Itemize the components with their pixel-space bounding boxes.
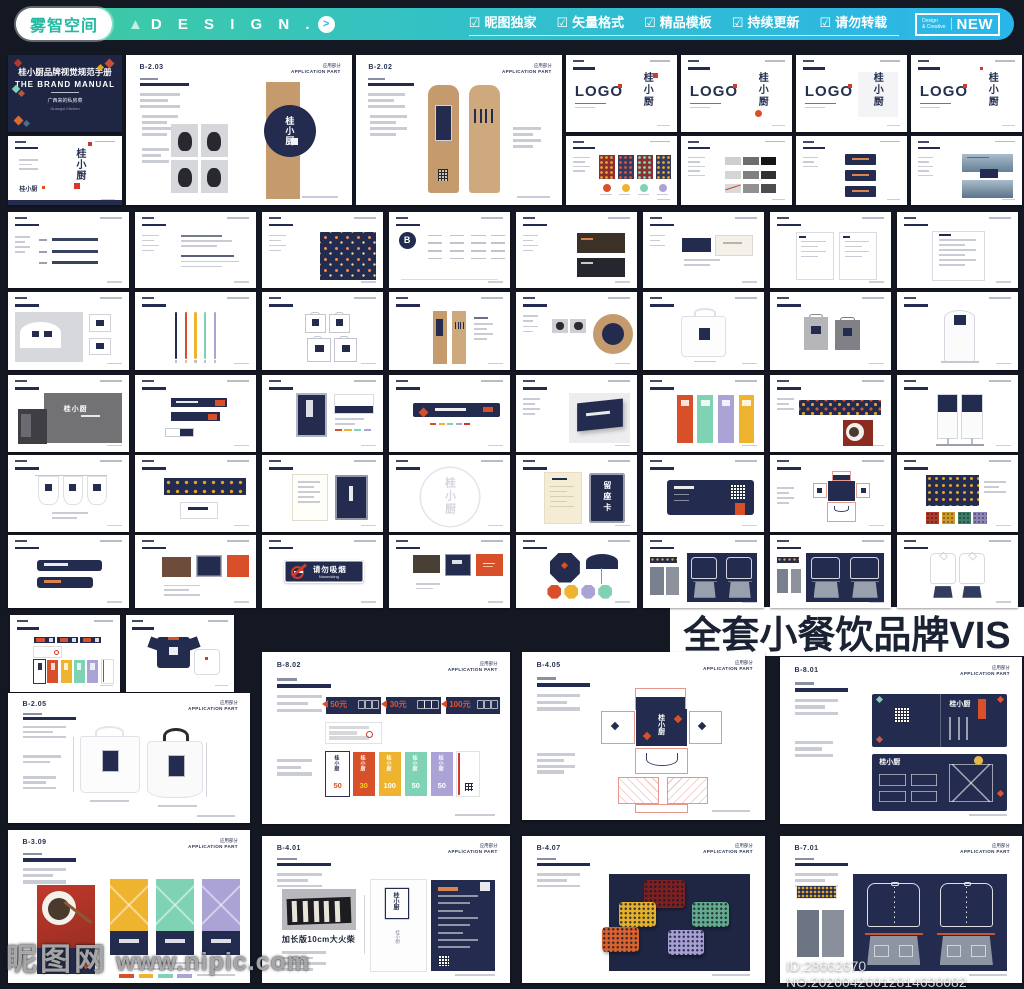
text-line xyxy=(523,413,535,415)
shape xyxy=(577,258,625,278)
shape xyxy=(619,194,630,195)
shape xyxy=(491,250,506,252)
logo-page[interactable]: LOGO桂小厨 xyxy=(796,55,907,132)
shape xyxy=(843,328,853,336)
page-code-mark xyxy=(142,380,154,382)
shape xyxy=(428,258,443,260)
text-line xyxy=(142,240,154,242)
shape xyxy=(381,700,387,708)
shape xyxy=(481,460,503,462)
shape xyxy=(72,638,76,641)
shape xyxy=(364,895,365,954)
thumbnail-doorBanners[interactable] xyxy=(643,375,764,452)
shape xyxy=(460,322,461,330)
shape xyxy=(904,387,928,389)
shape xyxy=(488,525,503,526)
shape xyxy=(537,677,556,680)
shape xyxy=(899,945,914,957)
shape xyxy=(368,83,413,86)
thumbnail-redNavy[interactable] xyxy=(135,535,256,608)
page-B-2.05[interactable]: B-2.05应用部分APPLICATION PART xyxy=(8,693,250,823)
shape xyxy=(234,281,249,282)
thumbnail-bullets[interactable] xyxy=(8,212,129,288)
gray-chip xyxy=(761,157,777,165)
shape xyxy=(269,224,293,226)
text-line xyxy=(537,753,576,756)
thumbnail-contents[interactable]: B xyxy=(389,212,510,288)
thumbnail-vouchersMini[interactable] xyxy=(10,615,120,692)
page-code-mark xyxy=(650,540,662,542)
shape xyxy=(458,753,460,794)
shape xyxy=(488,363,503,364)
seal xyxy=(755,110,762,117)
shape xyxy=(107,601,122,602)
shape xyxy=(681,400,689,406)
cup-photo xyxy=(207,168,221,188)
gray-chip xyxy=(725,157,741,165)
shape xyxy=(862,460,884,462)
text-line xyxy=(142,245,159,247)
thumbnail-photoPages[interactable] xyxy=(911,136,1022,205)
shape xyxy=(575,103,606,105)
shape xyxy=(852,190,870,192)
shape xyxy=(615,525,630,526)
watermark-url: www.nipic.com xyxy=(116,948,310,977)
text-line xyxy=(23,755,62,758)
shape xyxy=(455,322,456,330)
logo-page[interactable]: LOGO桂小厨 xyxy=(566,55,677,132)
thumbnail-patterns4[interactable] xyxy=(566,136,677,205)
text-line xyxy=(23,868,67,871)
shape xyxy=(622,184,630,192)
shape xyxy=(523,304,547,306)
shape xyxy=(989,540,1011,542)
text-line xyxy=(23,731,53,734)
thumbnail-sheets[interactable] xyxy=(770,212,891,288)
text-line xyxy=(474,323,493,325)
thumbnail-rollups[interactable] xyxy=(897,375,1018,452)
thumbnail-wayfinding[interactable] xyxy=(135,375,256,452)
shape: 桂小厨 xyxy=(333,755,340,772)
shape xyxy=(480,882,490,891)
text-line xyxy=(537,707,581,710)
shape xyxy=(777,467,801,469)
shape xyxy=(646,753,678,766)
shape xyxy=(81,415,100,417)
text-line xyxy=(918,157,934,158)
text-line xyxy=(523,398,540,400)
shape xyxy=(23,853,42,855)
text-line xyxy=(918,161,929,162)
shape xyxy=(142,547,166,549)
text-line xyxy=(269,235,286,237)
shape xyxy=(185,360,187,363)
shape xyxy=(833,475,850,480)
shape xyxy=(650,547,674,549)
text-line xyxy=(23,736,67,739)
dept-label: 应用部分APPLICATION PART xyxy=(502,63,552,74)
thumbnail-patternBand[interactable] xyxy=(770,375,891,452)
page-B-8.02[interactable]: B-8.02应用部分APPLICATION PART50元30元100元桂小厨5… xyxy=(262,652,510,824)
text-line xyxy=(298,491,320,493)
text-line xyxy=(19,164,32,165)
page-B-2.02[interactable]: B-2.02应用部分APPLICATION PART xyxy=(356,55,562,205)
thumbnail-umbrella[interactable] xyxy=(516,535,637,608)
text-line xyxy=(803,161,814,162)
shape xyxy=(581,238,593,240)
watermark-site-name: 昵图网 xyxy=(6,934,108,979)
thumbnail-uniformNavy[interactable] xyxy=(770,535,891,608)
shape xyxy=(640,184,648,192)
text-line xyxy=(550,501,567,503)
shape xyxy=(175,360,177,363)
logo-presentation-page[interactable]: 桂小厨桂小厨 xyxy=(8,136,122,205)
text-line xyxy=(513,139,542,142)
text-line xyxy=(984,481,1006,483)
text-line xyxy=(537,770,564,773)
shape xyxy=(941,361,980,363)
pen xyxy=(175,312,177,359)
text-line xyxy=(650,235,665,237)
text-line xyxy=(537,765,576,768)
shape xyxy=(52,238,98,241)
shape xyxy=(938,395,957,412)
page-code: B-7.01 xyxy=(795,845,819,852)
shape xyxy=(962,395,981,412)
shape xyxy=(602,712,634,742)
thumbnail-longBanner[interactable] xyxy=(389,375,510,452)
thumbnail-letterCard[interactable]: 留座卡 xyxy=(516,455,637,532)
shape xyxy=(723,242,742,244)
shape xyxy=(862,540,884,542)
staff-photo xyxy=(797,910,819,957)
thumbnail-bannerPattern[interactable] xyxy=(135,455,256,532)
page-B-4.07[interactable]: B-4.07应用部分APPLICATION PART xyxy=(522,836,765,983)
thumbnail-pens[interactable] xyxy=(135,292,256,370)
id-watermark: ID:28662670 NO:20200426012814638082 xyxy=(786,958,1024,989)
text-line xyxy=(801,251,825,253)
shape xyxy=(21,414,31,437)
shape xyxy=(657,199,670,200)
page-code-mark xyxy=(269,297,281,299)
shape xyxy=(354,460,376,462)
page-code-mark xyxy=(523,380,535,382)
thumbnail-cardNavy[interactable] xyxy=(643,212,764,288)
shape xyxy=(168,755,185,777)
cushion xyxy=(668,930,704,955)
shape xyxy=(96,320,103,325)
shape xyxy=(428,250,443,252)
thumbnail-kraftSleeves[interactable] xyxy=(389,292,510,370)
shape: APPLICATION PART xyxy=(448,667,498,672)
text-line xyxy=(795,747,822,750)
text-line xyxy=(23,787,57,790)
shape xyxy=(795,858,814,860)
text-line xyxy=(777,497,794,499)
shape xyxy=(666,567,679,595)
text-line xyxy=(164,585,200,586)
shape xyxy=(485,109,487,123)
dept-label: 应用部分APPLICATION PART xyxy=(188,700,238,711)
page-thumbnails-montage: 桂小厨品牌视觉规范手册THE BRAND MANUAL广西来的私房菜Guangx… xyxy=(0,0,1024,989)
page-code-mark xyxy=(132,620,143,622)
shape xyxy=(799,236,806,238)
shape xyxy=(102,750,119,772)
thumbnail-navyPattern[interactable] xyxy=(262,212,383,288)
page-code-mark xyxy=(17,620,28,622)
text-line xyxy=(23,776,57,779)
shape xyxy=(44,580,61,583)
apron xyxy=(729,582,751,598)
diamond-ornament xyxy=(23,120,30,127)
page-code: B-2.03 xyxy=(140,64,164,71)
shape xyxy=(60,638,69,641)
shape xyxy=(227,555,249,577)
shape xyxy=(69,484,76,491)
watermark-logo-circle: 桂小厨 xyxy=(421,468,479,526)
ticket-value: 50 xyxy=(431,781,453,790)
thumbnail-menuBook[interactable] xyxy=(262,455,383,532)
thumbnail-flags[interactable] xyxy=(8,455,129,532)
shape xyxy=(32,331,39,337)
shape xyxy=(15,304,39,306)
dept-label: 应用部分APPLICATION PART xyxy=(960,843,1010,854)
thumbnail-signPhoto[interactable] xyxy=(516,375,637,452)
text-line xyxy=(368,93,405,96)
shape xyxy=(735,460,757,462)
text-line xyxy=(684,264,709,266)
gray-chip xyxy=(761,184,777,192)
dept-label: 应用部分APPLICATION PART xyxy=(291,63,341,74)
shape xyxy=(716,236,752,254)
shape xyxy=(481,380,503,382)
text-line xyxy=(939,244,964,246)
shape xyxy=(38,663,42,671)
pattern-swatch xyxy=(958,512,971,524)
shape xyxy=(966,887,967,922)
text-line xyxy=(513,127,542,130)
shape xyxy=(862,297,884,299)
shape xyxy=(674,500,689,502)
text-line xyxy=(523,240,533,242)
shape xyxy=(366,701,371,708)
text-line xyxy=(939,239,975,241)
shape xyxy=(600,194,611,195)
thumbnail-cupSleeve[interactable] xyxy=(8,292,129,370)
shape: 桂小厨 xyxy=(438,755,445,772)
thumbnail-tote[interactable] xyxy=(643,292,764,370)
qr-code xyxy=(465,783,473,791)
shape xyxy=(488,601,503,602)
page-B-4.05[interactable]: B-4.05应用部分APPLICATION PART桂小厨 xyxy=(522,652,765,820)
text-line xyxy=(329,731,357,734)
shape xyxy=(949,764,993,802)
shape xyxy=(476,554,503,576)
shape xyxy=(100,685,113,686)
shape xyxy=(791,569,802,594)
shape xyxy=(483,563,495,564)
thumbnail-darkMenus[interactable] xyxy=(516,212,637,288)
logo-page[interactable]: LOGO桂小厨 xyxy=(911,55,1022,132)
shape: 桂小厨 xyxy=(359,755,366,772)
shape xyxy=(694,308,716,317)
reserve-card-label: 留座卡 xyxy=(602,481,613,514)
text-line xyxy=(368,105,405,108)
menu-logo: 桂小厨 xyxy=(949,699,970,709)
shape xyxy=(401,279,498,280)
page-code-mark xyxy=(15,141,26,143)
thumbnail-swatchPattern[interactable] xyxy=(897,455,1018,532)
shape xyxy=(94,620,114,622)
page-code: B-8.02 xyxy=(277,662,301,669)
pattern-swatch xyxy=(942,512,955,524)
shape xyxy=(214,360,216,363)
text-line xyxy=(15,251,25,253)
thumbnail-grayBags[interactable] xyxy=(770,292,891,370)
shape xyxy=(852,158,870,160)
shape xyxy=(636,805,687,812)
text-line xyxy=(277,772,312,775)
seal xyxy=(733,84,737,88)
ticket-value: 100 xyxy=(379,781,401,790)
text-line xyxy=(329,726,369,729)
page-code-mark xyxy=(650,460,662,462)
poster-template xyxy=(110,879,149,931)
shape xyxy=(428,235,443,237)
shape xyxy=(450,250,465,252)
thumbnail-storefront[interactable]: 桂小厨 xyxy=(8,375,129,452)
text-line xyxy=(370,133,396,136)
shape xyxy=(777,547,801,549)
page-code-mark xyxy=(803,141,814,143)
thumbnail-navyCards3[interactable] xyxy=(796,136,907,205)
jacket-outline xyxy=(811,557,840,579)
shape xyxy=(140,83,190,86)
shape xyxy=(15,224,39,226)
text-line xyxy=(474,338,488,340)
shape xyxy=(215,400,225,406)
shape xyxy=(396,304,420,306)
shape xyxy=(361,281,376,282)
thumbnail-tshirts[interactable] xyxy=(126,615,234,692)
shape xyxy=(54,650,59,655)
thumbnail-cupsKraft[interactable] xyxy=(516,292,637,370)
shape xyxy=(158,805,197,807)
text-line xyxy=(52,512,88,514)
text-line xyxy=(140,105,181,108)
pen xyxy=(214,312,216,359)
shape xyxy=(851,581,879,582)
page-B-8.01[interactable]: B-8.01应用部分APPLICATION PART桂小厨桂小厨 xyxy=(780,657,1022,824)
text-line xyxy=(939,264,964,266)
shape xyxy=(865,933,923,935)
shape xyxy=(995,141,1015,143)
shape xyxy=(42,186,45,189)
shape: APPLICATION PART xyxy=(960,671,1010,676)
shape xyxy=(690,712,722,742)
text-line xyxy=(181,240,232,242)
thumbnail-standee[interactable] xyxy=(897,292,1018,370)
shape xyxy=(204,360,206,363)
shape xyxy=(438,902,470,904)
shape xyxy=(176,401,198,403)
thumbnail-folder[interactable] xyxy=(389,535,510,608)
shape xyxy=(573,67,595,69)
thumbnail-nosmoking[interactable]: 请勿吸烟Nosmoking xyxy=(262,535,383,608)
gray-chip xyxy=(761,171,777,179)
page-code-mark xyxy=(396,540,408,542)
cover-page[interactable]: 桂小厨品牌视觉规范手册THE BRAND MANUAL广西来的私房菜Guangx… xyxy=(8,55,122,132)
shape xyxy=(602,323,624,345)
umbrella-side-view xyxy=(586,554,618,569)
thumbnail-bagsDiagram[interactable] xyxy=(262,292,383,370)
shape xyxy=(712,810,751,812)
thumbnail-typography[interactable] xyxy=(135,212,256,288)
shape xyxy=(608,460,630,462)
shape xyxy=(996,281,1011,282)
shape xyxy=(834,506,849,512)
shape xyxy=(699,328,710,340)
shape xyxy=(920,103,951,105)
umbrella-color xyxy=(564,585,578,599)
shape xyxy=(344,429,351,431)
shape xyxy=(474,317,489,319)
shape xyxy=(142,387,166,389)
shape xyxy=(269,387,293,389)
shape xyxy=(958,717,960,740)
text-line xyxy=(23,761,50,764)
shape xyxy=(735,540,757,542)
text-line xyxy=(142,235,159,237)
logo-page[interactable]: LOGO桂小厨 xyxy=(681,55,792,132)
page-B-2.03[interactable]: B-2.03应用部分APPLICATION PART桂小厨 xyxy=(126,55,352,205)
jacket-outline xyxy=(691,557,716,579)
page-code-mark xyxy=(573,141,584,143)
text-line xyxy=(277,873,322,876)
thumbnail-whiteUniform[interactable] xyxy=(897,535,1018,608)
shape xyxy=(435,105,451,141)
shape xyxy=(795,863,848,866)
page-code-mark xyxy=(688,141,699,143)
page-code-mark xyxy=(650,297,662,299)
thumbnail-tableCards[interactable] xyxy=(8,535,129,608)
thumbnail-circleMark[interactable]: 桂小厨 xyxy=(389,455,510,532)
thumbnail-uniformPhoto[interactable] xyxy=(643,535,764,608)
shape: APPLICATION PART xyxy=(188,844,238,849)
shape xyxy=(51,92,78,93)
thumbnail-grayscale[interactable] xyxy=(681,136,792,205)
text-line xyxy=(335,423,355,425)
thumbnail-posterCard[interactable] xyxy=(262,375,383,452)
shape xyxy=(795,688,848,692)
text-line xyxy=(650,240,660,242)
shape xyxy=(83,638,92,641)
shape xyxy=(51,663,55,671)
shape xyxy=(463,322,464,330)
thumbnail-sheet[interactable] xyxy=(897,212,1018,288)
page-code: B-3.09 xyxy=(23,839,47,846)
page-code-mark xyxy=(803,60,814,62)
thumbnail-vipSpread[interactable] xyxy=(643,455,764,532)
shape xyxy=(682,238,711,252)
page-code-mark xyxy=(142,540,154,542)
thumbnail-dielineSmall[interactable] xyxy=(770,455,891,532)
shape xyxy=(107,363,122,364)
text-line xyxy=(573,161,585,162)
shape xyxy=(812,581,840,582)
page-code-mark xyxy=(15,460,27,462)
shape xyxy=(90,663,94,671)
